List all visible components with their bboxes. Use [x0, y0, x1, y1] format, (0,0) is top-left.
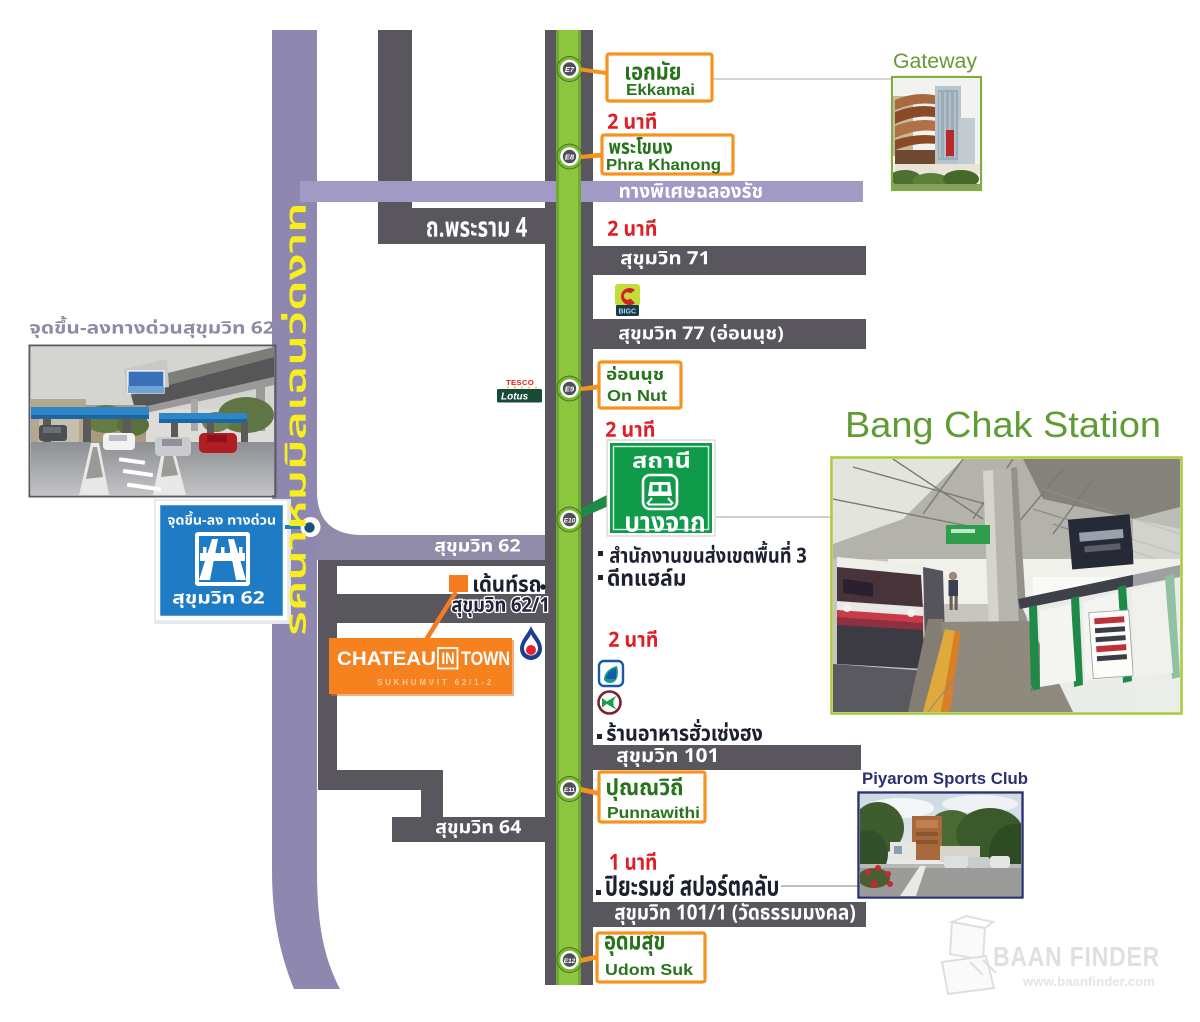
- svg-text:TOWN: TOWN: [461, 648, 510, 670]
- svg-text:Punnawithi: Punnawithi: [607, 805, 700, 822]
- svg-text:On Nut: On Nut: [607, 388, 668, 405]
- svg-text:Gateway: Gateway: [893, 50, 978, 73]
- svg-text:E11: E11: [564, 787, 575, 794]
- svg-text:www.baanfinder.com: www.baanfinder.com: [1022, 974, 1155, 989]
- svg-text:CHATEAU: CHATEAU: [337, 648, 436, 670]
- svg-text:E10: E10: [564, 517, 576, 524]
- svg-text:BIGC: BIGC: [619, 309, 637, 316]
- svg-text:E12: E12: [564, 958, 576, 965]
- svg-text:E8: E8: [565, 152, 575, 161]
- svg-text:E9: E9: [565, 384, 575, 393]
- svg-text:TESCO: TESCO: [506, 378, 534, 387]
- svg-text:Phra Khanong: Phra Khanong: [606, 157, 721, 174]
- svg-text:E7: E7: [565, 65, 575, 74]
- svg-text:Bang Chak Station: Bang Chak Station: [845, 404, 1161, 445]
- svg-text:Udom Suk: Udom Suk: [605, 962, 693, 979]
- svg-text:Ekkamai: Ekkamai: [626, 82, 695, 99]
- svg-text:BAAN FINDER: BAAN FINDER: [993, 941, 1160, 972]
- svg-text:Lotus: Lotus: [501, 392, 529, 403]
- svg-text:SUKHUMVIT 62/1-2: SUKHUMVIT 62/1-2: [377, 677, 494, 687]
- svg-text:IN: IN: [442, 649, 455, 668]
- svg-text:Piyarom Sports Club: Piyarom Sports Club: [862, 769, 1028, 788]
